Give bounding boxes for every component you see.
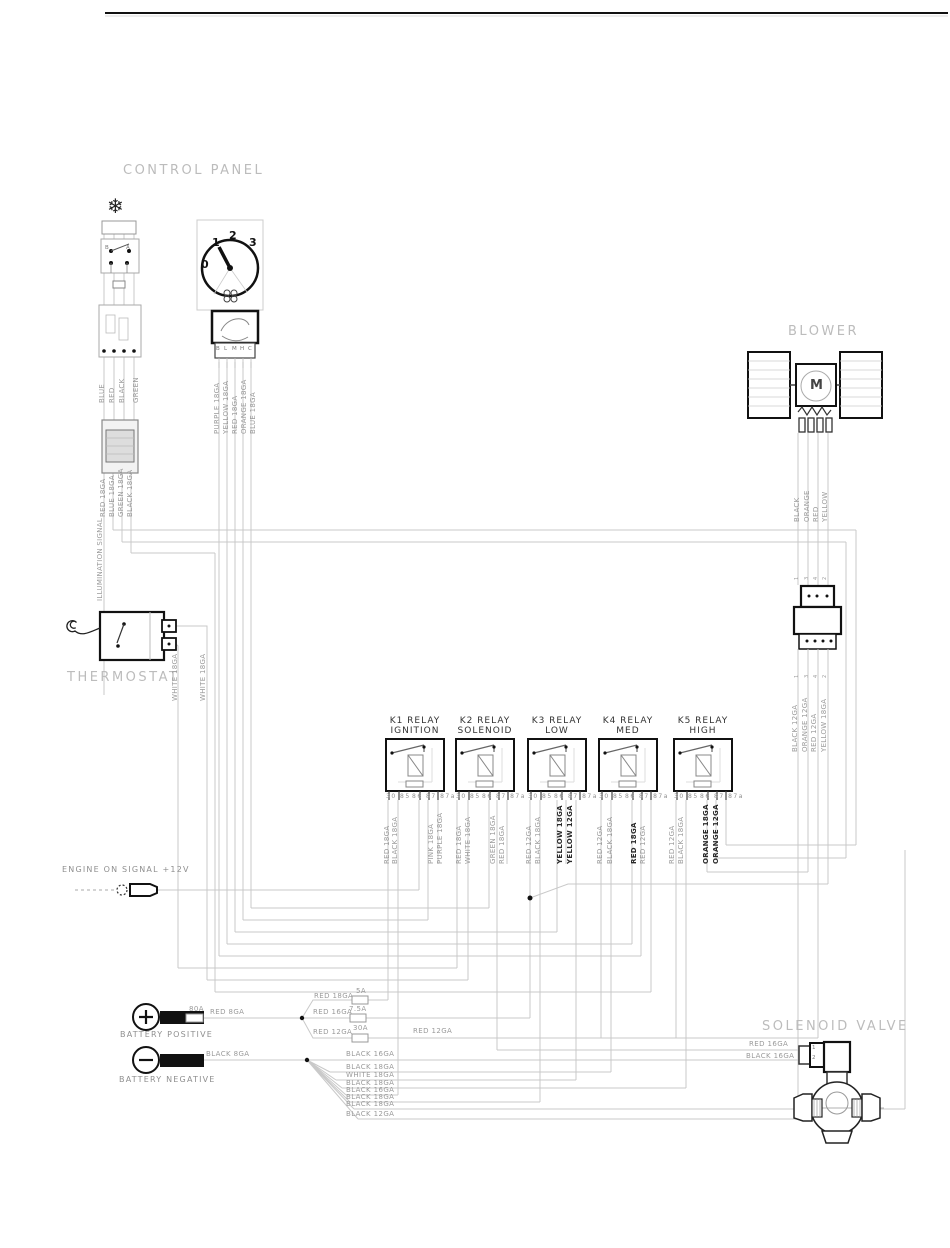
connector-pin-number: 4 (813, 577, 819, 580)
wire-label: YELLOW 18GA (556, 805, 564, 864)
selector-scale-letter: H (240, 346, 244, 352)
connector-pin-number: 3 (804, 675, 810, 678)
wire-label: RED 18GA (630, 822, 638, 864)
wire-label: RED 18GA (455, 826, 463, 864)
schematic-linework (0, 0, 950, 1248)
relay-name: K4 RELAY (598, 716, 658, 726)
battery-negative-label: BATTERY NEGATIVE (119, 1075, 216, 1084)
wire-label: RED 18GA (498, 826, 506, 864)
motor-letter: M (810, 378, 823, 393)
wire-label: ORANGE 12GA (712, 804, 720, 864)
relay-pin-labels: 30 85 (674, 793, 699, 800)
wire-label: BLUE 18GA (108, 475, 116, 517)
relay-name: K1 RELAY (385, 716, 445, 726)
battery-positive-label: BATTERY POSITIVE (120, 1030, 213, 1039)
wire-label: BLACK (793, 497, 801, 522)
junction-dots (300, 896, 533, 1063)
relay-pin-labels: 86 87 87a (554, 793, 598, 800)
wire-label: BLACK 18GA (346, 1063, 394, 1071)
section-label-blower: BLOWER (788, 324, 859, 339)
relay-name: K5 RELAY (673, 716, 733, 726)
wire-label: BLACK 18GA (126, 470, 134, 517)
wire-label: BLACK 16GA (746, 1052, 794, 1060)
wire-label: BLACK 18GA (677, 817, 685, 864)
relay-pin-labels: 86 87 87a (482, 793, 526, 800)
fuse-rating: 7.5A (349, 1005, 367, 1013)
relay-pin-labels: 86 87 87a (625, 793, 669, 800)
blower-connector (794, 586, 841, 652)
wire-label: BLACK 18GA (391, 817, 399, 864)
illumination-signal-label: ILLUMINATION SIGNAL (96, 518, 104, 601)
wire-label: ORANGE 18GA (240, 379, 248, 434)
fuse-rating: 80A (189, 1005, 204, 1013)
dial-position: 3 (249, 236, 257, 249)
connector-pin-number: 1 (794, 675, 800, 678)
relay-pin-labels: 30 85 (386, 793, 411, 800)
connector-pin-number: 3 (804, 577, 810, 580)
wire-label: RED 8GA (210, 1008, 244, 1016)
relay-name: K2 RELAY (455, 716, 515, 726)
wire-label: ORANGE 12GA (801, 697, 809, 752)
section-label-solenoid-valve: SOLENOID VALVE (762, 1019, 909, 1034)
dial-position: 0 (201, 258, 209, 271)
wire-label: RED 18GA (383, 826, 391, 864)
selector-scale-letter: M (232, 346, 237, 352)
relay-function: IGNITION (385, 726, 445, 736)
wiring-diagram-page: CONTROL PANEL BLOWER THERMOSTAT SOLENOID… (0, 0, 950, 1248)
selector-scale-letter: L (224, 346, 227, 352)
section-label-control-panel: CONTROL PANEL (123, 163, 264, 178)
control-panel-components (99, 221, 141, 473)
relay-pin-labels: 30 85 (599, 793, 624, 800)
wire-label: PURPLE 18GA (213, 383, 221, 434)
wire-label: BLACK 16GA (346, 1050, 394, 1058)
wire-label: WHITE 18GA (199, 654, 207, 701)
selector-scale-letter: C (248, 346, 252, 352)
wire-label: BLUE (98, 384, 106, 403)
wire-label: ORANGE (803, 490, 811, 522)
wire-label: RED 18GA (99, 479, 107, 517)
connector-pin-number: 1 (794, 577, 800, 580)
wire-label: BLUE 18GA (249, 392, 257, 434)
connector-pin-number: 2 (812, 1055, 816, 1061)
wire-label: BLACK 12GA (791, 705, 799, 752)
wire-label: PINK 18GA (427, 824, 435, 864)
section-label-thermostat: THERMOSTAT (67, 670, 179, 685)
wire-label: RED 12GA (525, 826, 533, 864)
relay-function: HIGH (673, 726, 733, 736)
wire-label: GREEN 18GA (117, 468, 125, 517)
wire-label: RED 12GA (413, 1027, 452, 1035)
wire-label: RED 12GA (639, 826, 647, 864)
connector-pin-number: 2 (822, 675, 828, 678)
relay-pin-labels: 30 85 (528, 793, 553, 800)
relay-bank (386, 739, 732, 800)
wire-label: WHITE 18GA (464, 817, 472, 864)
wire-label: BLACK 18GA (606, 817, 614, 864)
switch-contact-letter: B (105, 245, 109, 251)
wire-label: ORANGE 18GA (702, 804, 710, 864)
wire-label: YELLOW 18GA (222, 381, 230, 434)
wire-label: PURPLE 18GA (436, 813, 444, 864)
wire-label: YELLOW 12GA (566, 805, 574, 864)
wire-label: RED 12GA (668, 826, 676, 864)
dial-position: 1 (212, 236, 220, 249)
connector-pin-number: 1 (812, 1045, 816, 1051)
relay-pin-labels: 86 87 87a (412, 793, 456, 800)
wire-label: RED 12GA (313, 1028, 352, 1036)
connector-pin-number: 4 (813, 675, 819, 678)
wire-label: RED 16GA (313, 1008, 352, 1016)
snowflake-icon: ❄ (107, 194, 124, 218)
connector-pin-number: 2 (822, 577, 828, 580)
fuse-rating: 5A (356, 987, 366, 995)
page-top-rule (105, 13, 948, 16)
relay-function: SOLENOID (455, 726, 515, 736)
relay-function: LOW (527, 726, 587, 736)
wire-label: YELLOW (821, 492, 829, 522)
wire-label: BLACK 18GA (534, 817, 542, 864)
wire-label: RED 12GA (810, 714, 818, 752)
wire-label: RED 12GA (596, 826, 604, 864)
fuse-rating: 30A (353, 1024, 368, 1032)
relay-function: MED (598, 726, 658, 736)
engine-signal-plug (117, 884, 157, 896)
wire-label: RED (812, 506, 820, 522)
wire-label: BLACK (118, 378, 126, 403)
wire-label: BLACK 12GA (346, 1110, 394, 1118)
selector-scale-letter: B (216, 346, 220, 352)
wire-label: YELLOW 18GA (820, 699, 828, 752)
wire-label: WHITE 18GA (171, 654, 179, 701)
wire-label: RED 16GA (749, 1040, 788, 1048)
wire-label: RED 18GA (231, 396, 239, 434)
relay-pin-labels: 30 85 (456, 793, 481, 800)
wire-label: GREEN (132, 377, 140, 403)
engine-signal-label: ENGINE ON SIGNAL +12V (62, 865, 190, 874)
switch-contact-letter: A (126, 245, 130, 251)
wire-label: RED (108, 387, 116, 403)
relay-name: K3 RELAY (527, 716, 587, 726)
dial-position: 2 (229, 229, 237, 242)
wire-label: WHITE 18GA (346, 1071, 394, 1079)
wire-label: BLACK 8GA (206, 1050, 250, 1058)
solenoid-valve-component (794, 1042, 884, 1143)
wire-label: GREEN 18GA (489, 815, 497, 864)
wire-label: BLACK 18GA (346, 1100, 394, 1108)
thermostat-component (67, 612, 176, 660)
wire-label: RED 18GA (314, 992, 353, 1000)
speed-selector (212, 311, 258, 368)
relay-pin-labels: 86 87 87a (700, 793, 744, 800)
